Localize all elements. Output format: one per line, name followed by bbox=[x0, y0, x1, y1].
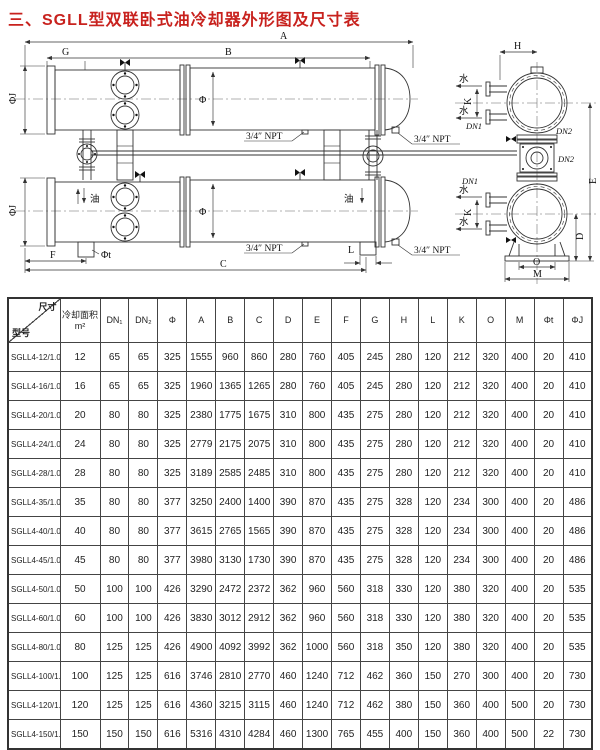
dim-label-d: D bbox=[575, 233, 586, 240]
value-cell: 80 bbox=[129, 517, 158, 546]
value-cell: 120 bbox=[418, 459, 447, 488]
value-cell: 410 bbox=[563, 401, 592, 430]
value-cell: 328 bbox=[389, 546, 418, 575]
table-row: SGLL4-28/1.02880803253189258524853108004… bbox=[8, 459, 592, 488]
value-cell: 400 bbox=[505, 372, 534, 401]
header-row: 尺寸 型号 冷却面积 m²DN₁DN₂ΦABCDEFGHLKOMΦtΦJ bbox=[8, 298, 592, 343]
value-cell: 535 bbox=[563, 575, 592, 604]
npt-label-1: 3/4″ NPT bbox=[246, 132, 283, 142]
value-cell: 4284 bbox=[245, 720, 274, 750]
dim-label-k-upper: K bbox=[463, 97, 474, 105]
value-cell: 400 bbox=[389, 720, 418, 750]
value-cell: 377 bbox=[158, 517, 187, 546]
value-cell: 300 bbox=[476, 546, 505, 575]
value-cell: 150 bbox=[418, 720, 447, 750]
value-cell: 486 bbox=[563, 488, 592, 517]
value-cell: 20 bbox=[534, 488, 563, 517]
corner-cell: 尺寸 型号 bbox=[8, 298, 60, 343]
model-cell: SGLL4-100/1.0 bbox=[8, 662, 60, 691]
model-cell: SGLL4-16/1.0 bbox=[8, 372, 60, 401]
value-cell: 616 bbox=[158, 691, 187, 720]
value-cell: 2472 bbox=[216, 575, 245, 604]
value-cell: 3980 bbox=[187, 546, 216, 575]
value-cell: 20 bbox=[534, 691, 563, 720]
outline-drawing: 油 油 A G B ΦJ Φ ΦJ Φ F C L 3/4″ NPT bbox=[0, 32, 600, 295]
value-cell: 730 bbox=[563, 720, 592, 750]
table-row: SGLL4-24/1.02480803252779217520753108004… bbox=[8, 430, 592, 459]
model-cell: SGLL4-24/1.0 bbox=[8, 430, 60, 459]
column-header: H bbox=[389, 298, 418, 343]
column-header: D bbox=[274, 298, 303, 343]
value-cell: 400 bbox=[505, 633, 534, 662]
table-row: SGLL4-20/1.02080803252380177516753108004… bbox=[8, 401, 592, 430]
value-cell: 390 bbox=[274, 488, 303, 517]
value-cell: 80 bbox=[100, 401, 129, 430]
value-cell: 362 bbox=[274, 575, 303, 604]
column-header: DN₁ bbox=[100, 298, 129, 343]
value-cell: 3130 bbox=[216, 546, 245, 575]
table-row: SGLL4-40/1.04080803773615276515653908704… bbox=[8, 517, 592, 546]
dim-label-f: F bbox=[50, 250, 56, 261]
value-cell: 280 bbox=[389, 401, 418, 430]
value-cell: 360 bbox=[447, 691, 476, 720]
value-cell: 125 bbox=[129, 691, 158, 720]
value-cell: 2585 bbox=[216, 459, 245, 488]
value-cell: 125 bbox=[129, 633, 158, 662]
value-cell: 3189 bbox=[187, 459, 216, 488]
column-header: F bbox=[332, 298, 361, 343]
value-cell: 2380 bbox=[187, 401, 216, 430]
value-cell: 400 bbox=[476, 720, 505, 750]
value-cell: 960 bbox=[216, 343, 245, 372]
value-cell: 362 bbox=[274, 604, 303, 633]
value-cell: 212 bbox=[447, 372, 476, 401]
value-cell: 120 bbox=[418, 575, 447, 604]
model-cell: SGLL4-28/1.0 bbox=[8, 459, 60, 488]
value-cell: 40 bbox=[60, 517, 100, 546]
value-cell: 16 bbox=[60, 372, 100, 401]
value-cell: 320 bbox=[476, 604, 505, 633]
value-cell: 1775 bbox=[216, 401, 245, 430]
value-cell: 234 bbox=[447, 546, 476, 575]
value-cell: 1555 bbox=[187, 343, 216, 372]
column-header: Φt bbox=[534, 298, 563, 343]
value-cell: 2770 bbox=[245, 662, 274, 691]
value-cell: 435 bbox=[332, 546, 361, 575]
value-cell: 80 bbox=[129, 546, 158, 575]
value-cell: 2810 bbox=[216, 662, 245, 691]
value-cell: 4092 bbox=[216, 633, 245, 662]
lower-vessel bbox=[47, 169, 410, 257]
value-cell: 150 bbox=[418, 662, 447, 691]
value-cell: 150 bbox=[418, 691, 447, 720]
value-cell: 20 bbox=[534, 343, 563, 372]
value-cell: 390 bbox=[274, 546, 303, 575]
value-cell: 400 bbox=[505, 546, 534, 575]
value-cell: 150 bbox=[100, 720, 129, 750]
value-cell: 320 bbox=[476, 633, 505, 662]
value-cell: 275 bbox=[360, 430, 389, 459]
dim-label-e: E bbox=[588, 178, 599, 184]
value-cell: 760 bbox=[303, 343, 332, 372]
cooler-outline-svg: 油 油 A G B ΦJ Φ ΦJ Φ F C L 3/4″ NPT bbox=[0, 32, 600, 290]
column-header: ΦJ bbox=[563, 298, 592, 343]
value-cell: 275 bbox=[360, 488, 389, 517]
value-cell: 400 bbox=[505, 459, 534, 488]
value-cell: 80 bbox=[100, 546, 129, 575]
value-cell: 20 bbox=[534, 546, 563, 575]
value-cell: 400 bbox=[505, 517, 534, 546]
table-row: SGLL4-100/1.0100125125616374628102770460… bbox=[8, 662, 592, 691]
value-cell: 125 bbox=[100, 662, 129, 691]
value-cell: 486 bbox=[563, 546, 592, 575]
value-cell: 100 bbox=[100, 575, 129, 604]
value-cell: 245 bbox=[360, 372, 389, 401]
value-cell: 325 bbox=[158, 401, 187, 430]
model-cell: SGLL4-120/1.0 bbox=[8, 691, 60, 720]
value-cell: 212 bbox=[447, 343, 476, 372]
model-cell: SGLL4-20/1.0 bbox=[8, 401, 60, 430]
value-cell: 616 bbox=[158, 662, 187, 691]
value-cell: 20 bbox=[534, 401, 563, 430]
value-cell: 405 bbox=[332, 343, 361, 372]
value-cell: 325 bbox=[158, 372, 187, 401]
value-cell: 1400 bbox=[245, 488, 274, 517]
column-header: E bbox=[303, 298, 332, 343]
value-cell: 380 bbox=[389, 691, 418, 720]
value-cell: 150 bbox=[60, 720, 100, 750]
value-cell: 3615 bbox=[187, 517, 216, 546]
value-cell: 1265 bbox=[245, 372, 274, 401]
water-label-2: 水 bbox=[459, 105, 469, 117]
value-cell: 2175 bbox=[216, 430, 245, 459]
value-cell: 362 bbox=[274, 633, 303, 662]
value-cell: 318 bbox=[360, 633, 389, 662]
value-cell: 400 bbox=[505, 604, 534, 633]
value-cell: 60 bbox=[60, 604, 100, 633]
value-cell: 2372 bbox=[245, 575, 274, 604]
value-cell: 300 bbox=[476, 517, 505, 546]
value-cell: 320 bbox=[476, 372, 505, 401]
table-row: SGLL4-80/1.08012512542649004092399236210… bbox=[8, 633, 592, 662]
value-cell: 50 bbox=[60, 575, 100, 604]
dim-label-phit: Φt bbox=[101, 250, 111, 261]
dim-label-b: B bbox=[225, 47, 232, 58]
value-cell: 3746 bbox=[187, 662, 216, 691]
value-cell: 320 bbox=[476, 430, 505, 459]
value-cell: 100 bbox=[100, 604, 129, 633]
value-cell: 245 bbox=[360, 343, 389, 372]
dim-label-phij-lower: ΦJ bbox=[8, 205, 19, 216]
value-cell: 100 bbox=[60, 662, 100, 691]
value-cell: 712 bbox=[332, 662, 361, 691]
value-cell: 125 bbox=[129, 662, 158, 691]
value-cell: 1565 bbox=[245, 517, 274, 546]
column-header: K bbox=[447, 298, 476, 343]
value-cell: 22 bbox=[534, 720, 563, 750]
corner-label-model: 型号 bbox=[12, 328, 30, 339]
model-cell: SGLL4-45/1.0 bbox=[8, 546, 60, 575]
value-cell: 80 bbox=[100, 517, 129, 546]
table-row: SGLL4-50/1.05010010042632902472237236296… bbox=[8, 575, 592, 604]
value-cell: 426 bbox=[158, 604, 187, 633]
value-cell: 560 bbox=[332, 604, 361, 633]
value-cell: 2912 bbox=[245, 604, 274, 633]
value-cell: 20 bbox=[60, 401, 100, 430]
dim-label-o: O bbox=[533, 257, 540, 268]
value-cell: 120 bbox=[418, 633, 447, 662]
value-cell: 120 bbox=[60, 691, 100, 720]
value-cell: 2400 bbox=[216, 488, 245, 517]
value-cell: 3992 bbox=[245, 633, 274, 662]
value-cell: 150 bbox=[129, 720, 158, 750]
value-cell: 20 bbox=[534, 430, 563, 459]
dn1-label-upper: DN1 bbox=[465, 121, 482, 131]
value-cell: 20 bbox=[534, 604, 563, 633]
column-header: B bbox=[216, 298, 245, 343]
value-cell: 80 bbox=[129, 459, 158, 488]
value-cell: 80 bbox=[129, 430, 158, 459]
column-header: M bbox=[505, 298, 534, 343]
value-cell: 320 bbox=[476, 575, 505, 604]
value-cell: 328 bbox=[389, 488, 418, 517]
value-cell: 24 bbox=[60, 430, 100, 459]
value-cell: 730 bbox=[563, 691, 592, 720]
column-header: O bbox=[476, 298, 505, 343]
value-cell: 1240 bbox=[303, 691, 332, 720]
value-cell: 212 bbox=[447, 430, 476, 459]
value-cell: 120 bbox=[418, 517, 447, 546]
value-cell: 20 bbox=[534, 575, 563, 604]
oil-flow-markers: 油 油 bbox=[78, 188, 362, 205]
value-cell: 500 bbox=[505, 691, 534, 720]
value-cell: 28 bbox=[60, 459, 100, 488]
dim-label-phi-lower: Φ bbox=[199, 207, 206, 218]
dn1-label-lower: DN1 bbox=[461, 176, 478, 186]
value-cell: 800 bbox=[303, 430, 332, 459]
value-cell: 560 bbox=[332, 575, 361, 604]
value-cell: 2485 bbox=[245, 459, 274, 488]
value-cell: 455 bbox=[360, 720, 389, 750]
value-cell: 325 bbox=[158, 343, 187, 372]
oil-label-right: 油 bbox=[344, 193, 354, 205]
value-cell: 80 bbox=[129, 488, 158, 517]
value-cell: 280 bbox=[274, 343, 303, 372]
value-cell: 350 bbox=[389, 633, 418, 662]
value-cell: 405 bbox=[332, 372, 361, 401]
end-views: H 水 水 K DN1 DN2 DN2 水 水 K DN1 bbox=[456, 41, 599, 282]
corner-label-size: 尺寸 bbox=[38, 302, 56, 313]
table-row: SGLL4-16/1.01665653251960136512652807604… bbox=[8, 372, 592, 401]
value-cell: 65 bbox=[129, 343, 158, 372]
value-cell: 400 bbox=[476, 691, 505, 720]
value-cell: 410 bbox=[563, 459, 592, 488]
column-header: C bbox=[245, 298, 274, 343]
value-cell: 5316 bbox=[187, 720, 216, 750]
value-cell: 300 bbox=[476, 488, 505, 517]
value-cell: 1000 bbox=[303, 633, 332, 662]
value-cell: 2765 bbox=[216, 517, 245, 546]
value-cell: 65 bbox=[100, 372, 129, 401]
value-cell: 1675 bbox=[245, 401, 274, 430]
value-cell: 65 bbox=[100, 343, 129, 372]
model-cell: SGLL4-35/1.0 bbox=[8, 488, 60, 517]
value-cell: 462 bbox=[360, 662, 389, 691]
oil-label-left: 油 bbox=[90, 193, 100, 205]
dim-label-h: H bbox=[514, 41, 521, 52]
value-cell: 280 bbox=[389, 372, 418, 401]
value-cell: 80 bbox=[100, 459, 129, 488]
value-cell: 960 bbox=[303, 604, 332, 633]
dn2-label-lower: DN2 bbox=[557, 154, 575, 164]
spec-table-body: SGLL4-12/1.01265653251555960860280760405… bbox=[8, 343, 592, 750]
value-cell: 300 bbox=[476, 662, 505, 691]
value-cell: 1960 bbox=[187, 372, 216, 401]
value-cell: 320 bbox=[476, 343, 505, 372]
value-cell: 765 bbox=[332, 720, 361, 750]
value-cell: 20 bbox=[534, 517, 563, 546]
value-cell: 12 bbox=[60, 343, 100, 372]
value-cell: 330 bbox=[389, 575, 418, 604]
value-cell: 20 bbox=[534, 662, 563, 691]
value-cell: 1240 bbox=[303, 662, 332, 691]
npt-label-3: 3/4″ NPT bbox=[246, 244, 283, 254]
value-cell: 860 bbox=[245, 343, 274, 372]
value-cell: 100 bbox=[129, 575, 158, 604]
model-cell: SGLL4-12/1.0 bbox=[8, 343, 60, 372]
value-cell: 234 bbox=[447, 517, 476, 546]
value-cell: 435 bbox=[332, 488, 361, 517]
value-cell: 65 bbox=[129, 372, 158, 401]
value-cell: 120 bbox=[418, 488, 447, 517]
value-cell: 120 bbox=[418, 372, 447, 401]
value-cell: 400 bbox=[505, 343, 534, 372]
npt-label-2: 3/4″ NPT bbox=[414, 135, 451, 145]
dim-label-phi-upper: Φ bbox=[199, 95, 206, 106]
value-cell: 4360 bbox=[187, 691, 216, 720]
value-cell: 120 bbox=[418, 343, 447, 372]
value-cell: 400 bbox=[505, 662, 534, 691]
table-row: SGLL4-120/1.0120125125616436032153115460… bbox=[8, 691, 592, 720]
value-cell: 2779 bbox=[187, 430, 216, 459]
value-cell: 4900 bbox=[187, 633, 216, 662]
value-cell: 410 bbox=[563, 372, 592, 401]
value-cell: 380 bbox=[447, 633, 476, 662]
value-cell: 1365 bbox=[216, 372, 245, 401]
value-cell: 460 bbox=[274, 720, 303, 750]
value-cell: 377 bbox=[158, 546, 187, 575]
value-cell: 535 bbox=[563, 604, 592, 633]
value-cell: 3830 bbox=[187, 604, 216, 633]
value-cell: 400 bbox=[505, 430, 534, 459]
dim-label-phij-upper: ΦJ bbox=[8, 93, 19, 104]
value-cell: 360 bbox=[389, 662, 418, 691]
value-cell: 3115 bbox=[245, 691, 274, 720]
value-cell: 435 bbox=[332, 430, 361, 459]
model-cell: SGLL4-60/1.0 bbox=[8, 604, 60, 633]
value-cell: 234 bbox=[447, 488, 476, 517]
value-cell: 435 bbox=[332, 401, 361, 430]
dim-label-a: A bbox=[280, 32, 288, 42]
value-cell: 35 bbox=[60, 488, 100, 517]
dim-label-k-lower: K bbox=[463, 208, 474, 216]
value-cell: 960 bbox=[303, 575, 332, 604]
value-cell: 280 bbox=[274, 372, 303, 401]
value-cell: 760 bbox=[303, 372, 332, 401]
value-cell: 310 bbox=[274, 401, 303, 430]
value-cell: 275 bbox=[360, 459, 389, 488]
value-cell: 1300 bbox=[303, 720, 332, 750]
value-cell: 390 bbox=[274, 517, 303, 546]
value-cell: 125 bbox=[100, 691, 129, 720]
value-cell: 410 bbox=[563, 430, 592, 459]
table-row: SGLL4-150/1.0150150150616531643104284460… bbox=[8, 720, 592, 750]
value-cell: 800 bbox=[303, 401, 332, 430]
dim-label-g: G bbox=[62, 47, 69, 58]
value-cell: 377 bbox=[158, 488, 187, 517]
value-cell: 410 bbox=[563, 343, 592, 372]
value-cell: 3250 bbox=[187, 488, 216, 517]
table-row: SGLL4-60/1.06010010042638303012291236296… bbox=[8, 604, 592, 633]
value-cell: 330 bbox=[389, 604, 418, 633]
dimension-table: 尺寸 型号 冷却面积 m²DN₁DN₂ΦABCDEFGHLKOMΦtΦJ SGL… bbox=[7, 297, 593, 750]
value-cell: 45 bbox=[60, 546, 100, 575]
value-cell: 120 bbox=[418, 430, 447, 459]
column-header: L bbox=[418, 298, 447, 343]
value-cell: 120 bbox=[418, 546, 447, 575]
npt-label-4: 3/4″ NPT bbox=[414, 246, 451, 256]
value-cell: 325 bbox=[158, 430, 187, 459]
value-cell: 325 bbox=[158, 459, 187, 488]
value-cell: 800 bbox=[303, 459, 332, 488]
value-cell: 80 bbox=[100, 488, 129, 517]
value-cell: 380 bbox=[447, 604, 476, 633]
table-row: SGLL4-35/1.03580803773250240014003908704… bbox=[8, 488, 592, 517]
model-cell: SGLL4-40/1.0 bbox=[8, 517, 60, 546]
value-cell: 270 bbox=[447, 662, 476, 691]
value-cell: 280 bbox=[389, 430, 418, 459]
value-cell: 560 bbox=[332, 633, 361, 662]
value-cell: 460 bbox=[274, 662, 303, 691]
value-cell: 80 bbox=[129, 401, 158, 430]
page-title: 三、SGLL型双联卧式油冷却器外形图及尺寸表 bbox=[8, 6, 600, 30]
value-cell: 460 bbox=[274, 691, 303, 720]
dn2-label-upper: DN2 bbox=[555, 126, 573, 136]
value-cell: 462 bbox=[360, 691, 389, 720]
value-cell: 535 bbox=[563, 633, 592, 662]
model-cell: SGLL4-80/1.0 bbox=[8, 633, 60, 662]
value-cell: 1730 bbox=[245, 546, 274, 575]
value-cell: 616 bbox=[158, 720, 187, 750]
value-cell: 435 bbox=[332, 517, 361, 546]
value-cell: 310 bbox=[274, 459, 303, 488]
value-cell: 320 bbox=[476, 459, 505, 488]
value-cell: 275 bbox=[360, 401, 389, 430]
value-cell: 318 bbox=[360, 604, 389, 633]
model-cell: SGLL4-50/1.0 bbox=[8, 575, 60, 604]
value-cell: 20 bbox=[534, 459, 563, 488]
value-cell: 3215 bbox=[216, 691, 245, 720]
value-cell: 870 bbox=[303, 517, 332, 546]
table-row: SGLL4-45/1.04580803773980313017303908704… bbox=[8, 546, 592, 575]
upper-vessel bbox=[47, 57, 410, 135]
value-cell: 380 bbox=[447, 575, 476, 604]
column-header: 冷却面积 m² bbox=[60, 298, 100, 343]
value-cell: 80 bbox=[60, 633, 100, 662]
value-cell: 100 bbox=[129, 604, 158, 633]
dim-label-l: L bbox=[348, 245, 354, 256]
value-cell: 20 bbox=[534, 633, 563, 662]
